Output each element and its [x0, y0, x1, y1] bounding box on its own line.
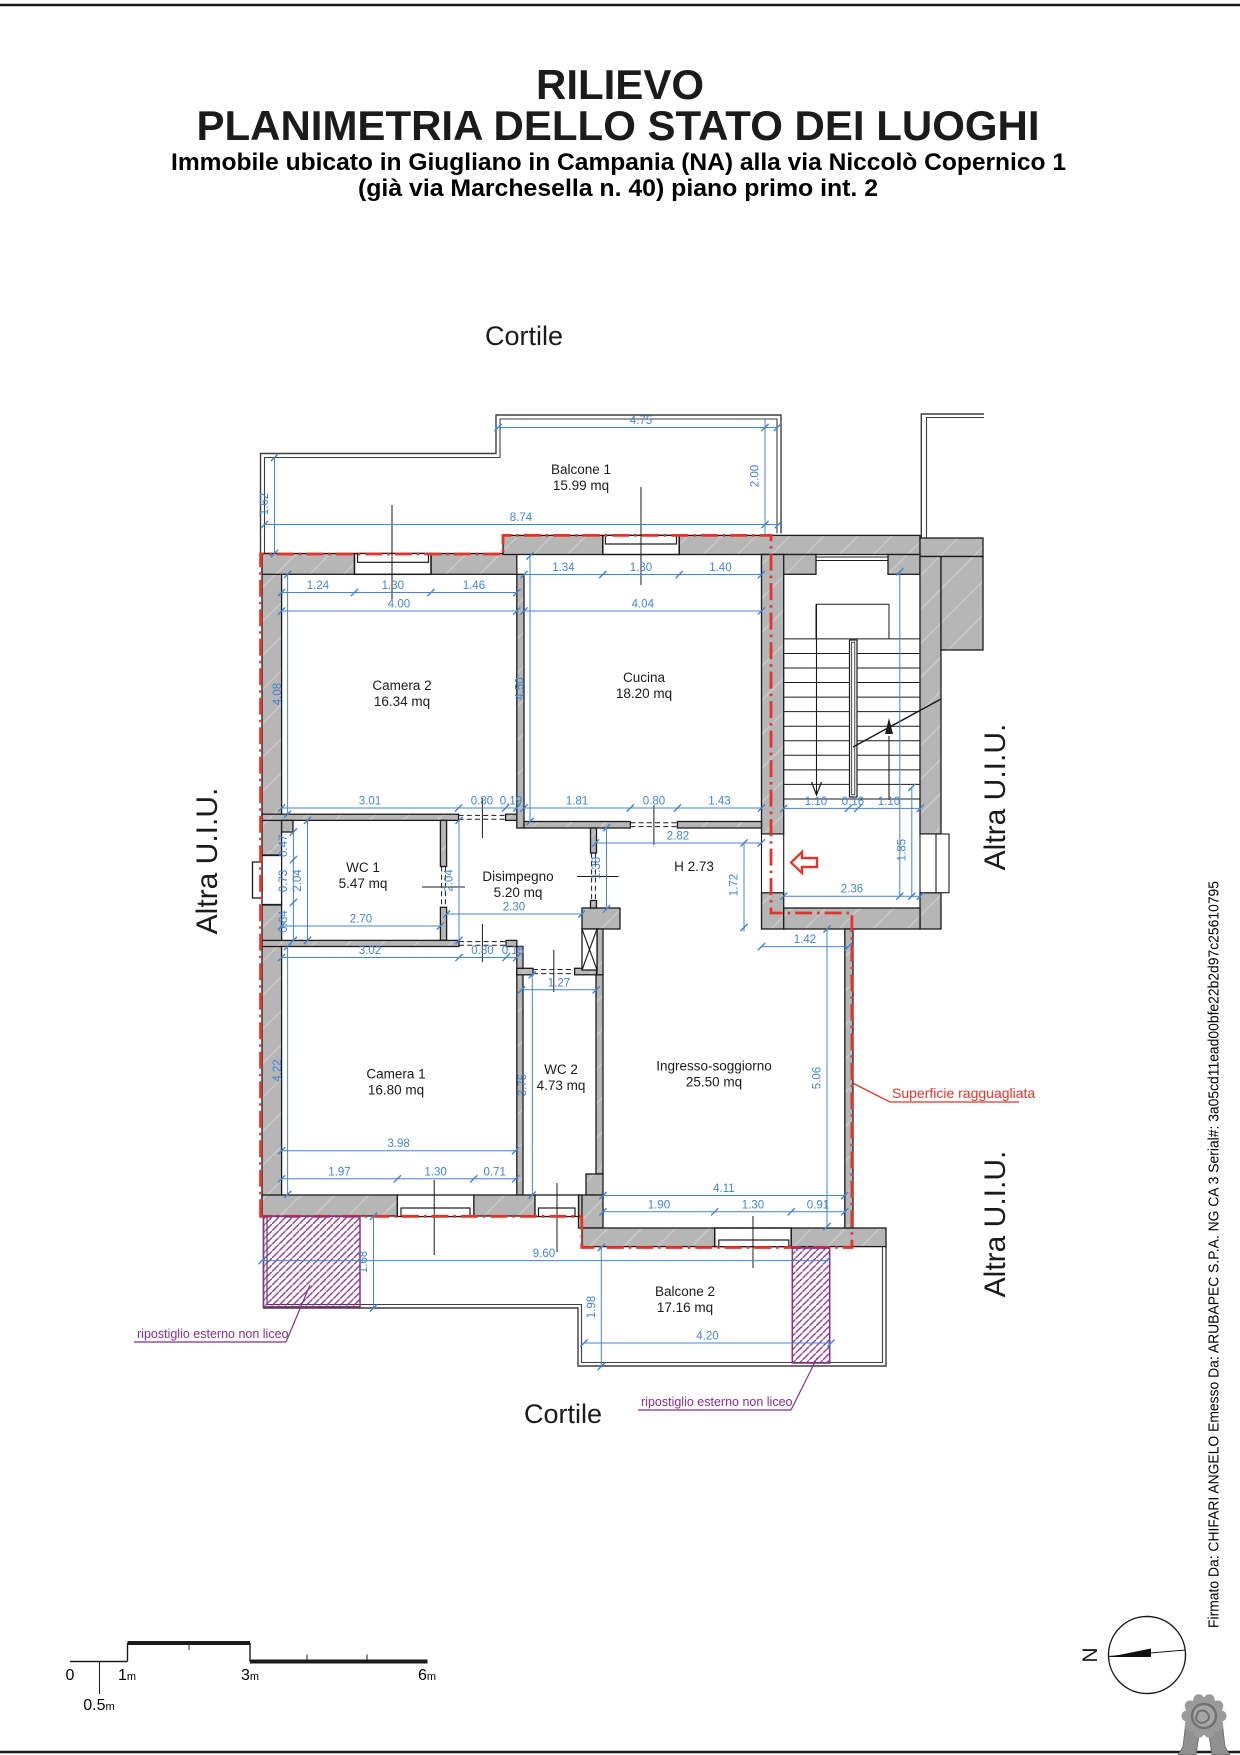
svg-text:3.75: 3.75 — [517, 1074, 529, 1096]
svg-text:Immobile ubicato in Giugliano: Immobile ubicato in Giugliano in Campani… — [171, 149, 1066, 176]
svg-text:4.75: 4.75 — [630, 415, 652, 427]
svg-text:Camera 2: Camera 2 — [372, 678, 431, 693]
svg-text:1.30: 1.30 — [630, 562, 652, 574]
svg-text:1.85: 1.85 — [896, 839, 908, 861]
svg-text:0.80: 0.80 — [643, 796, 665, 808]
svg-text:15.99 mq: 15.99 mq — [553, 478, 609, 493]
svg-text:5.47 mq: 5.47 mq — [339, 876, 388, 891]
svg-text:0.19: 0.19 — [500, 796, 522, 808]
svg-text:2.30: 2.30 — [503, 902, 525, 914]
svg-text:3.01: 3.01 — [359, 796, 381, 808]
svg-text:1.30: 1.30 — [382, 580, 404, 592]
svg-text:4.11: 4.11 — [713, 1183, 735, 1195]
svg-text:4.22: 4.22 — [272, 1059, 284, 1081]
svg-text:Altra U.I.U.: Altra U.I.U. — [979, 1151, 1012, 1298]
svg-text:Firmato Da: CHIFARI ANGELO Eme: Firmato Da: CHIFARI ANGELO Emesso Da: AR… — [1207, 881, 1223, 1628]
svg-text:2.00: 2.00 — [750, 465, 762, 487]
svg-text:1.97: 1.97 — [328, 1166, 350, 1178]
svg-text:1.30: 1.30 — [742, 1199, 764, 1211]
svg-text:1.43: 1.43 — [708, 796, 730, 808]
svg-text:17.16 mq: 17.16 mq — [657, 1300, 713, 1315]
svg-text:4.04: 4.04 — [632, 599, 655, 611]
svg-text:Altra U.I.U.: Altra U.I.U. — [979, 724, 1012, 871]
svg-text:Disimpegno: Disimpegno — [482, 869, 553, 884]
svg-text:8.74: 8.74 — [510, 512, 533, 524]
svg-text:0.16: 0.16 — [842, 796, 864, 808]
svg-text:1.10: 1.10 — [878, 796, 900, 808]
svg-text:4.08: 4.08 — [272, 683, 284, 705]
svg-text:1.34: 1.34 — [552, 562, 575, 574]
svg-text:25.50 mq: 25.50 mq — [686, 1075, 742, 1090]
svg-text:4.50: 4.50 — [515, 677, 527, 699]
svg-text:H 2.73: H 2.73 — [674, 859, 714, 874]
svg-text:0.64: 0.64 — [278, 910, 290, 933]
svg-text:WC 1: WC 1 — [346, 860, 380, 875]
svg-text:1.98: 1.98 — [586, 1296, 598, 1318]
svg-text:Balcone 2: Balcone 2 — [655, 1284, 715, 1299]
svg-text:1.90: 1.90 — [648, 1199, 670, 1211]
svg-text:N: N — [1079, 1647, 1102, 1662]
svg-text:5.20 mq: 5.20 mq — [494, 885, 543, 900]
svg-text:1.81: 1.81 — [566, 796, 588, 808]
svg-text:2.04: 2.04 — [292, 869, 304, 892]
svg-text:16.34 mq: 16.34 mq — [374, 694, 430, 709]
svg-text:Camera 1: Camera 1 — [366, 1066, 425, 1081]
svg-text:1.46: 1.46 — [463, 580, 485, 592]
svg-text:1.68: 1.68 — [358, 1251, 370, 1273]
svg-text:2.82: 2.82 — [667, 831, 689, 843]
svg-text:1.42: 1.42 — [794, 934, 816, 946]
svg-text:4.73 mq: 4.73 mq — [537, 1078, 586, 1093]
svg-text:1.24: 1.24 — [307, 580, 330, 592]
svg-text:1.10: 1.10 — [805, 796, 827, 808]
svg-text:0.71: 0.71 — [484, 1166, 506, 1178]
svg-text:Cortile: Cortile — [524, 1399, 602, 1429]
svg-text:1.30: 1.30 — [424, 1166, 446, 1178]
svg-text:ripostiglio esterno non liceo: ripostiglio esterno non liceo — [641, 1395, 793, 1409]
svg-text:16.80 mq: 16.80 mq — [368, 1082, 424, 1097]
svg-text:Altra U.I.U.: Altra U.I.U. — [191, 788, 224, 935]
svg-text:0.15: 0.15 — [502, 945, 524, 957]
svg-text:0.47: 0.47 — [278, 835, 290, 857]
svg-text:(già via Marchesella n. 40) pi: (già via Marchesella n. 40) piano primo … — [358, 175, 878, 202]
svg-text:3.02: 3.02 — [359, 945, 381, 957]
svg-text:2.04: 2.04 — [444, 869, 456, 892]
svg-text:1.62: 1.62 — [259, 493, 271, 515]
svg-text:0.91: 0.91 — [807, 1199, 829, 1211]
svg-text:Ingresso-soggiorno: Ingresso-soggiorno — [656, 1059, 772, 1074]
svg-text:5.06: 5.06 — [812, 1067, 824, 1089]
svg-text:2.36: 2.36 — [841, 884, 863, 896]
svg-text:0: 0 — [66, 1667, 75, 1684]
svg-text:1.38: 1.38 — [591, 857, 603, 879]
svg-text:0.80: 0.80 — [471, 796, 493, 808]
svg-text:ripostiglio esterno non liceo: ripostiglio esterno non liceo — [137, 1327, 289, 1341]
svg-text:2.70: 2.70 — [350, 914, 372, 926]
svg-text:PLANIMETRIA DELLO STATO DEI LU: PLANIMETRIA DELLO STATO DEI LUOGHI — [196, 102, 1039, 149]
svg-text:3.98: 3.98 — [387, 1138, 409, 1150]
svg-text:0.73: 0.73 — [278, 870, 290, 892]
svg-text:Superficie ragguagliata: Superficie ragguagliata — [892, 1085, 1035, 1101]
svg-text:Balcone 1: Balcone 1 — [551, 462, 611, 477]
svg-text:1.27: 1.27 — [548, 977, 570, 989]
svg-text:18.20 mq: 18.20 mq — [616, 686, 672, 701]
svg-text:WC 2: WC 2 — [544, 1062, 578, 1077]
svg-text:RILIEVO: RILIEVO — [536, 61, 704, 108]
svg-text:9.60: 9.60 — [533, 1248, 555, 1260]
svg-text:1.72: 1.72 — [729, 874, 741, 896]
svg-text:Cortile: Cortile — [485, 321, 563, 351]
svg-text:4.00: 4.00 — [388, 599, 410, 611]
svg-text:0.80: 0.80 — [471, 945, 493, 957]
svg-text:4.20: 4.20 — [696, 1331, 718, 1343]
svg-text:1.40: 1.40 — [709, 562, 731, 574]
svg-text:Cucina: Cucina — [623, 670, 666, 685]
